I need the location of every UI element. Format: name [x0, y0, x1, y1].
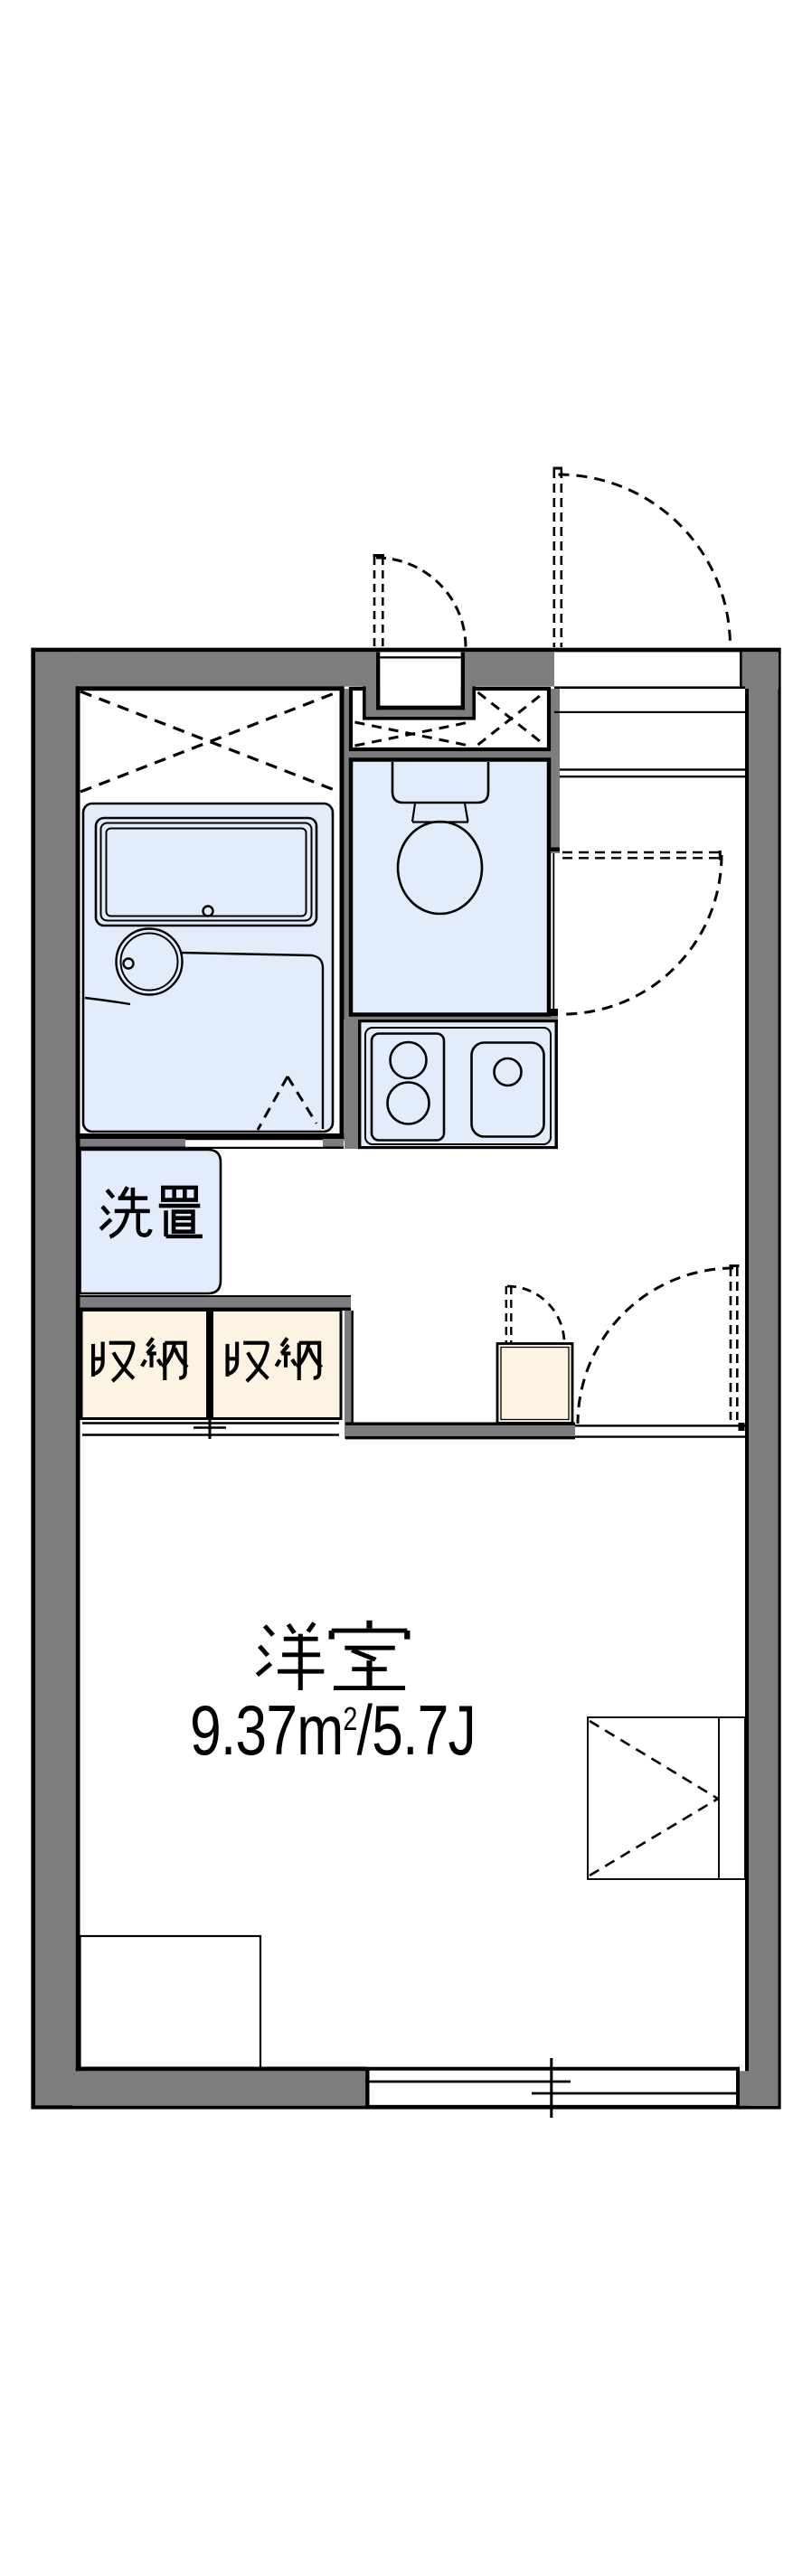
svg-text:9.37m2/5.7J: 9.37m2/5.7J [190, 1690, 476, 1769]
